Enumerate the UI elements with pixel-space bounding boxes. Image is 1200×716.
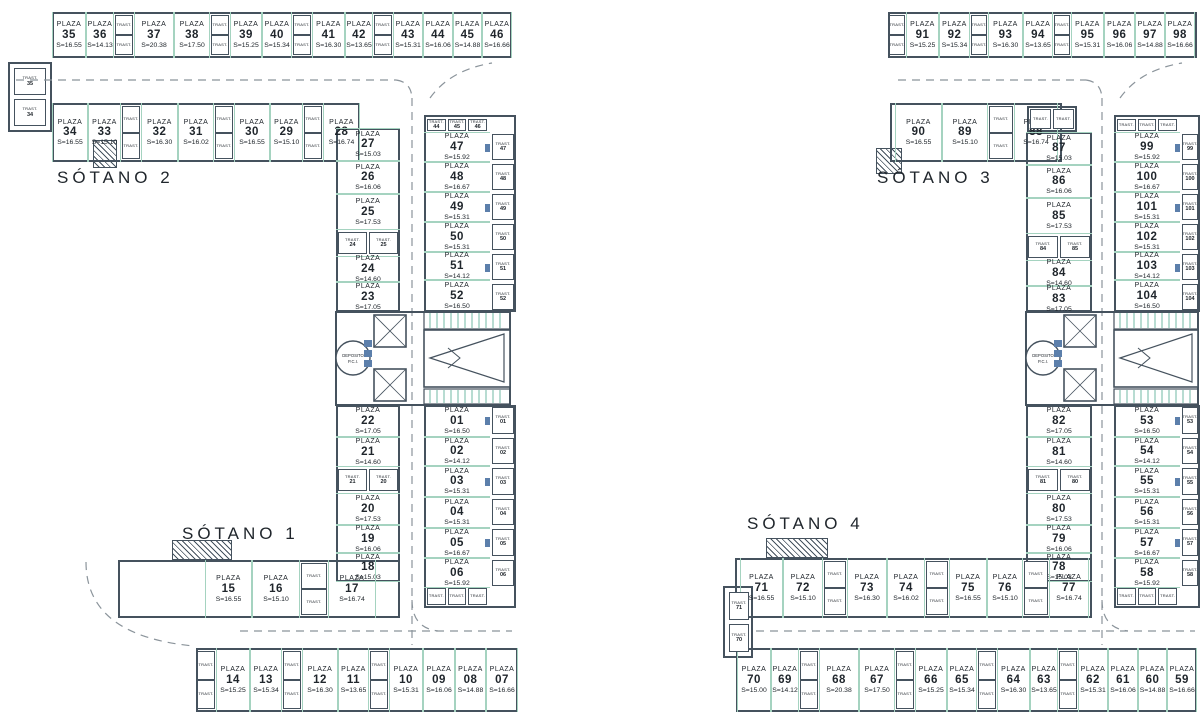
stall-plaza-number: 68	[832, 674, 846, 687]
storage-label: TRAST.	[376, 23, 391, 27]
floor-label-sotano-4: SÓTANO 4	[747, 514, 864, 534]
stall-plaza-number: 42	[352, 29, 366, 42]
parking-space-stall: PLAZA102S=15.31	[1114, 222, 1180, 252]
storage-box: TRAST.06	[492, 560, 514, 587]
stall-plaza-word: PLAZA	[427, 666, 452, 673]
parking-space-stall: PLAZA42S=13.65	[345, 12, 373, 58]
storage-label: TRAST.	[124, 144, 139, 148]
stall-plaza-word: PLAZA	[445, 282, 470, 289]
storage-number: 06	[500, 572, 506, 578]
stall-plaza-word: PLAZA	[1032, 666, 1057, 673]
storage-box: TRAST.	[215, 106, 233, 133]
storage-box: TRAST.	[293, 35, 311, 55]
ramp-triangle	[430, 334, 504, 382]
parking-space-stall: PLAZA103S=14.12	[1114, 252, 1180, 280]
stall-plaza-number: 15	[222, 583, 236, 596]
stall-area-value: S=15.31	[1134, 519, 1160, 526]
stall-plaza-word: PLAZA	[910, 21, 935, 28]
parking-space-stall: PLAZA62S=15.31	[1078, 648, 1108, 712]
stall-plaza-word: PLAZA	[1135, 438, 1160, 445]
stall-plaza-number: 27	[361, 138, 375, 151]
stall-area-value: S=15.10	[274, 139, 300, 146]
stall-plaza-number: 81	[1052, 446, 1066, 459]
parking-space-stall: PLAZA03S=15.31	[424, 466, 490, 497]
storage-box: TRAST.53	[1182, 407, 1198, 434]
stall-plaza-word: PLAZA	[1026, 21, 1051, 28]
door-marker	[485, 417, 490, 425]
stall-plaza-word: PLAZA	[394, 666, 419, 673]
stall-plaza-word: PLAZA	[356, 131, 381, 138]
stall-plaza-word: PLAZA	[773, 666, 798, 673]
elevator-shaft	[1064, 369, 1096, 401]
stall-area-value: S=15.25	[233, 42, 259, 49]
stall-plaza-word: PLAZA	[1001, 666, 1026, 673]
stall-plaza-word: PLAZA	[88, 21, 113, 28]
parking-space-stall: PLAZA12S=16.30	[302, 648, 338, 712]
storage-label: TRAST.	[930, 572, 945, 576]
ramp	[1114, 330, 1198, 387]
parking-space-stall: PLAZA16S=15.10	[252, 560, 300, 618]
stall-plaza-number: 58	[1140, 567, 1154, 580]
storage-number: 71	[736, 605, 742, 611]
stall-area-value: S=15.25	[220, 687, 246, 694]
storage-number: 49	[500, 206, 506, 212]
stall-plaza-number: 76	[998, 582, 1012, 595]
storage-box: TRAST.	[971, 15, 987, 35]
stall-area-value: S=16.06	[355, 184, 381, 191]
stall-plaza-word: PLAZA	[221, 666, 246, 673]
storage-box: TRAST.24	[338, 232, 367, 254]
parking-space-stall: PLAZA80S=17.53	[1026, 493, 1092, 525]
stall-plaza-word: PLAZA	[426, 21, 451, 28]
stall-area-value: S=15.10	[992, 595, 1018, 602]
stall-plaza-number: 11	[347, 674, 360, 687]
storage-number: 02	[500, 450, 506, 456]
stall-area-value: S=16.06	[1046, 546, 1072, 553]
stall-plaza-number: 83	[1052, 293, 1066, 306]
storage-label: TRAST.	[802, 692, 817, 696]
parking-space-stall: PLAZA27S=15.03	[336, 128, 400, 161]
stall-plaza-number: 66	[924, 674, 938, 687]
stall-plaza-word: PLAZA	[1047, 135, 1072, 142]
stall-plaza-word: PLAZA	[1081, 666, 1106, 673]
stall-plaza-number: 07	[495, 674, 509, 687]
storage-label: TRAST.	[802, 663, 817, 667]
storage-box: TRAST.57	[1182, 529, 1198, 556]
stall-plaza-word: PLAZA	[445, 223, 470, 230]
storage-box: TRAST.99	[1182, 134, 1198, 160]
parking-space-stall: PLAZA52S=16.50	[424, 280, 490, 312]
stall-plaza-number: 80	[1052, 503, 1066, 516]
storage-box: TRAST.52	[492, 284, 514, 310]
stall-plaza-number: 99	[1140, 141, 1154, 154]
stall-plaza-word: PLAZA	[1047, 407, 1072, 414]
stall-area-value: S=16.06	[355, 546, 381, 553]
stall-area-value: S=15.34	[942, 42, 968, 49]
parking-space-stall: PLAZA29S=15.10	[270, 103, 303, 162]
stall-area-value: S=15.10	[790, 595, 816, 602]
storage-number: 99	[1187, 146, 1193, 152]
stall-plaza-number: 82	[1052, 415, 1066, 428]
stall-area-value: S=16.30	[316, 42, 342, 49]
storage-box: TRAST.	[283, 651, 301, 680]
elevator-shaft	[374, 369, 406, 401]
stall-plaza-word: PLAZA	[58, 119, 83, 126]
stall-plaza-word: PLAZA	[308, 666, 333, 673]
stall-plaza-number: 39	[239, 29, 253, 42]
stall-plaza-number: 103	[1137, 260, 1158, 273]
stall-plaza-number: 91	[916, 29, 930, 42]
stall-plaza-number: 100	[1137, 171, 1158, 184]
storage-label: TRAST.	[972, 23, 987, 27]
stall-plaza-word: PLAZA	[490, 666, 515, 673]
stall-plaza-number: 64	[1007, 674, 1021, 687]
parking-space-stall: PLAZA30S=16.55	[234, 103, 270, 162]
parking-space-stall: PLAZA02S=14.12	[424, 437, 490, 466]
storage-label: TRAST.	[117, 23, 132, 27]
storage-box: TRAST.	[1117, 588, 1136, 605]
parking-space-stall: PLAZA41S=16.30	[312, 12, 345, 58]
parking-space-stall: PLAZA70S=15.00	[737, 648, 771, 712]
storage-box: TRAST.49	[492, 194, 514, 220]
storage-label: TRAST.	[1055, 43, 1070, 47]
stall-plaza-word: PLAZA	[791, 574, 816, 581]
stall-area-value: S=16.67	[444, 550, 470, 557]
stall-area-value: S=16.66	[1167, 42, 1193, 49]
storage-box: TRAST.	[122, 106, 140, 133]
stall-area-value: S=14.12	[1134, 458, 1160, 465]
stall-plaza-word: PLAZA	[445, 438, 470, 445]
stall-plaza-number: 93	[999, 29, 1013, 42]
storage-box: TRAST.21	[338, 469, 367, 491]
storage-label: TRAST.	[429, 594, 444, 598]
storage-label: TRAST.	[285, 692, 300, 696]
storage-label: TRAST.	[1033, 117, 1048, 121]
stall-area-value: S=15.31	[1134, 244, 1160, 251]
elevator-shaft	[374, 315, 406, 347]
storage-label: TRAST.	[295, 43, 310, 47]
door-marker	[485, 264, 490, 272]
stall-plaza-number: 40	[270, 29, 284, 42]
storage-box: TRAST.56	[1182, 499, 1198, 526]
stall-plaza-number: 95	[1081, 29, 1095, 42]
stall-plaza-word: PLAZA	[356, 283, 381, 290]
stall-plaza-number: 31	[189, 126, 203, 139]
stall-area-value: S=15.31	[1134, 214, 1160, 221]
stall-plaza-number: 21	[361, 446, 375, 459]
parking-space-stall: PLAZA66S=15.25	[915, 648, 947, 712]
parking-space-stall: PLAZA04S=15.31	[424, 497, 490, 528]
parking-space-stall: PLAZA104S=16.50	[1114, 280, 1180, 312]
stall-plaza-number: 97	[1143, 29, 1157, 42]
stall-plaza-word: PLAZA	[1047, 525, 1072, 532]
parking-space-stall: PLAZA39S=15.25	[230, 12, 262, 58]
stall-area-value: S=15.25	[910, 42, 936, 49]
storage-number: 56	[1187, 511, 1193, 517]
stall-plaza-number: 22	[361, 415, 375, 428]
parking-space-stall: PLAZA13S=15.34	[250, 648, 282, 712]
storage-box: TRAST.100	[1182, 164, 1198, 190]
parking-space-stall: PLAZA68S=20.38	[819, 648, 859, 712]
stall-plaza-number: 45	[461, 29, 475, 42]
stall-area-value: S=15.34	[949, 687, 975, 694]
parking-space-stall: PLAZA100S=16.67	[1114, 162, 1180, 192]
stall-plaza-number: 29	[280, 126, 294, 139]
parking-space-stall: PLAZA86S=16.06	[1026, 165, 1092, 198]
stall-plaza-word: PLAZA	[1107, 21, 1132, 28]
stall-area-value: S=15.31	[1075, 42, 1101, 49]
stall-plaza-number: 51	[450, 260, 464, 273]
stall-plaza-number: 02	[450, 445, 464, 458]
parking-space-stall: PLAZA21S=14.60	[336, 437, 400, 467]
storage-label: TRAST.	[828, 599, 843, 603]
parking-space-stall: PLAZA17S=16.74	[328, 560, 376, 618]
parking-space-stall: PLAZA25S=17.53	[336, 194, 400, 230]
stall-plaza-number: 61	[1116, 674, 1130, 687]
stall-area-value: S=16.55	[216, 596, 242, 603]
parking-space-stall: PLAZA89S=15.10	[942, 103, 988, 162]
storage-label: TRAST.	[972, 43, 987, 47]
door-marker	[1175, 204, 1180, 212]
storage-label: TRAST.	[217, 117, 232, 121]
storage-number: 50	[500, 236, 506, 242]
stall-area-value: S=14.88	[1137, 42, 1163, 49]
stall-plaza-number: 01	[450, 415, 464, 428]
stall-plaza-number: 71	[755, 582, 769, 595]
stall-plaza-number: 19	[361, 533, 375, 546]
storage-box: TRAST.48	[492, 164, 514, 190]
storage-box: TRAST.	[824, 588, 846, 615]
storage-box: TRAST.	[301, 563, 327, 589]
storage-box: TRAST.	[800, 680, 818, 709]
stall-area-value: S=16.06	[1107, 42, 1133, 49]
stall-area-value: S=16.30	[993, 42, 1019, 49]
parking-space-stall: PLAZA82S=17.05	[1026, 405, 1092, 437]
stall-plaza-number: 96	[1113, 29, 1127, 42]
storage-label: TRAST.	[1139, 594, 1154, 598]
storage-box: TRAST.34	[14, 99, 46, 126]
storage-label: TRAST.	[980, 663, 995, 667]
stall-plaza-number: 08	[464, 674, 478, 687]
storage-box: TRAST.	[889, 15, 905, 35]
parking-space-stall: PLAZA57S=16.67	[1114, 528, 1180, 558]
stall-area-value: S=14.88	[458, 687, 484, 694]
storage-box: TRAST.	[896, 651, 914, 680]
stall-plaza-word: PLAZA	[1135, 163, 1160, 170]
parking-space-stall: PLAZA01S=16.50	[424, 405, 490, 437]
storage-number: 24	[349, 242, 355, 248]
storage-number: 46	[475, 124, 481, 130]
stall-area-value: S=16.30	[307, 687, 333, 694]
stall-plaza-number: 85	[1052, 210, 1066, 223]
stall-area-value: S=16.06	[426, 687, 452, 694]
stall-area-value: S=15.00	[741, 687, 767, 694]
parking-space-stall: PLAZA54S=14.12	[1114, 437, 1180, 466]
stall-area-value: S=14.60	[1046, 459, 1072, 466]
storage-label: TRAST.	[980, 692, 995, 696]
storage-box: TRAST.	[211, 15, 229, 35]
stall-area-value: S=16.55	[955, 595, 981, 602]
stall-plaza-word: PLAZA	[1075, 21, 1100, 28]
stall-plaza-number: 94	[1031, 29, 1045, 42]
storage-number: 48	[500, 176, 506, 182]
pci-deposit-circle	[1026, 341, 1060, 375]
stall-area-value: S=15.31	[444, 488, 470, 495]
stall-plaza-word: PLAZA	[1138, 21, 1163, 28]
storage-label: TRAST.	[199, 692, 214, 696]
parking-space-stall: PLAZA34S=16.55	[52, 103, 88, 162]
stall-plaza-number: 50	[450, 231, 464, 244]
stall-plaza-word: PLAZA	[264, 575, 289, 582]
stall-plaza-word: PLAZA	[942, 21, 967, 28]
stall-plaza-word: PLAZA	[57, 21, 82, 28]
storage-label: TRAST.	[1061, 692, 1076, 696]
parking-space-stall: PLAZA94S=13.65	[1023, 12, 1053, 58]
stall-area-value: S=15.92	[444, 154, 470, 161]
parking-space-stall: PLAZA69S=14.12	[771, 648, 799, 712]
floor-plan-canvas: PLAZA35S=16.55PLAZA36S=14.13TRAST.TRAST.…	[0, 0, 1200, 716]
storage-box: TRAST.	[926, 588, 948, 615]
storage-box: TRAST.	[283, 680, 301, 709]
stall-plaza-word: PLAZA	[356, 198, 381, 205]
stall-area-value: S=17.05	[355, 428, 381, 435]
stall-area-value: S=16.55	[749, 595, 775, 602]
parking-space-stall: PLAZA26S=16.06	[336, 161, 400, 194]
stall-plaza-number: 73	[860, 582, 874, 595]
storage-number: 25	[380, 242, 386, 248]
stall-plaza-word: PLAZA	[1135, 252, 1160, 259]
stall-area-value: S=16.50	[444, 303, 470, 310]
parking-space-stall: PLAZA08S=14.88	[455, 648, 486, 712]
storage-box: TRAST.102	[1182, 224, 1198, 250]
stall-plaza-word: PLAZA	[396, 21, 421, 28]
stall-plaza-number: 34	[63, 126, 77, 139]
storage-number: 70	[736, 637, 742, 643]
stall-area-value: S=14.12	[444, 458, 470, 465]
stall-plaza-word: PLAZA	[184, 119, 209, 126]
storage-box: TRAST.	[1158, 588, 1177, 605]
storage-box: TRAST.80	[1060, 469, 1090, 491]
stall-area-value: S=15.31	[444, 214, 470, 221]
stall-plaza-number: 72	[796, 582, 810, 595]
storage-box: TRAST.	[304, 133, 322, 160]
stall-plaza-word: PLAZA	[1135, 223, 1160, 230]
stall-plaza-number: 38	[185, 29, 199, 42]
stall-plaza-word: PLAZA	[1135, 529, 1160, 536]
parking-space-stall: PLAZA91S=15.25	[906, 12, 939, 58]
storage-box: TRAST.47	[492, 134, 514, 160]
stall-plaza-word: PLAZA	[1135, 559, 1160, 566]
stall-plaza-number: 49	[450, 201, 464, 214]
stall-plaza-word: PLAZA	[316, 21, 341, 28]
stall-plaza-number: 60	[1146, 674, 1160, 687]
stall-area-value: S=14.88	[455, 42, 481, 49]
door-marker	[485, 144, 490, 152]
parking-space-stall: PLAZA77S=16.74	[1049, 558, 1089, 618]
storage-box: TRAST.54	[1182, 438, 1198, 465]
storage-label: TRAST.	[1119, 123, 1134, 127]
stall-area-value: S=16.30	[147, 139, 173, 146]
stall-area-value: S=14.88	[1140, 687, 1166, 694]
stall-plaza-number: 54	[1140, 445, 1154, 458]
stall-plaza-word: PLAZA	[485, 21, 510, 28]
parking-space-stall: PLAZA40S=15.34	[262, 12, 292, 58]
stall-plaza-word: PLAZA	[1135, 193, 1160, 200]
parking-space-stall: PLAZA72S=15.10	[783, 558, 823, 618]
stall-plaza-word: PLAZA	[265, 21, 290, 28]
core-group: DEPOSITOP.C.I.	[1026, 312, 1198, 405]
stair-band	[1114, 312, 1198, 329]
storage-box: TRAST.	[1138, 588, 1157, 605]
parking-space-stall: PLAZA98S=16.66	[1165, 12, 1195, 58]
stall-area-value: S=13.65	[1025, 42, 1051, 49]
storage-label: TRAST.	[1139, 123, 1154, 127]
parking-space-stall: PLAZA96S=16.06	[1104, 12, 1135, 58]
stall-plaza-number: 48	[450, 171, 464, 184]
stall-area-value: S=13.65	[346, 42, 372, 49]
stall-plaza-number: 25	[361, 206, 375, 219]
stall-plaza-word: PLAZA	[347, 21, 372, 28]
stall-plaza-number: 14	[226, 674, 240, 687]
parking-space-stall: PLAZA11S=13.65	[338, 648, 369, 712]
storage-box: TRAST.	[215, 133, 233, 160]
entry-hatch	[766, 538, 828, 558]
stall-area-value: S=16.06	[1110, 687, 1136, 694]
svg-text:DEPOSITO: DEPOSITO	[1032, 353, 1054, 358]
stall-plaza-word: PLAZA	[950, 666, 975, 673]
stall-area-value: S=16.55	[239, 139, 265, 146]
stall-plaza-word: PLAZA	[919, 666, 944, 673]
storage-box: TRAST.20	[369, 469, 398, 491]
stall-plaza-word: PLAZA	[906, 119, 931, 126]
parking-space-stall: PLAZA47S=15.92	[424, 132, 490, 162]
floor-label-sotano-1: SÓTANO 1	[182, 524, 299, 544]
stall-area-value: S=15.25	[918, 687, 944, 694]
stall-plaza-number: 33	[98, 126, 112, 139]
storage-box: TRAST.02	[492, 438, 514, 465]
stall-area-value: S=16.67	[1134, 550, 1160, 557]
stall-plaza-number: 63	[1037, 674, 1051, 687]
stall-plaza-word: PLAZA	[1135, 499, 1160, 506]
storage-box: TRAST.	[824, 561, 846, 588]
parking-space-stall: PLAZA64S=16.30	[997, 648, 1030, 712]
storage-box: TRAST.	[301, 589, 327, 615]
parking-space-stall: PLAZA53S=16.50	[1114, 405, 1180, 437]
storage-box: TRAST.	[115, 15, 133, 35]
storage-number: 05	[500, 541, 506, 547]
parking-space-stall: PLAZA14S=15.25	[216, 648, 250, 712]
storage-box: TRAST.	[896, 680, 914, 709]
stall-plaza-word: PLAZA	[445, 468, 470, 475]
stall-area-value: S=15.10	[263, 596, 289, 603]
stall-plaza-number: 90	[912, 126, 926, 139]
storage-box: TRAST.44	[427, 119, 446, 131]
storage-box: TRAST.70	[729, 624, 749, 652]
storage-label: TRAST.	[470, 594, 485, 598]
stair-band	[1114, 389, 1198, 404]
storage-box: TRAST.	[1024, 588, 1048, 615]
storage-box: TRAST.	[889, 35, 905, 55]
stall-area-value: S=16.50	[444, 428, 470, 435]
stall-plaza-number: 17	[345, 583, 359, 596]
parking-space-stall: PLAZA79S=16.06	[1026, 525, 1092, 553]
parking-space-stall: PLAZA33S=15.10	[88, 103, 121, 162]
stall-area-value: S=15.31	[395, 42, 421, 49]
stall-area-value: S=17.05	[1046, 428, 1072, 435]
stall-area-value: S=16.67	[1134, 184, 1160, 191]
stall-area-value: S=17.53	[355, 516, 381, 523]
storage-box: TRAST.	[370, 651, 388, 680]
